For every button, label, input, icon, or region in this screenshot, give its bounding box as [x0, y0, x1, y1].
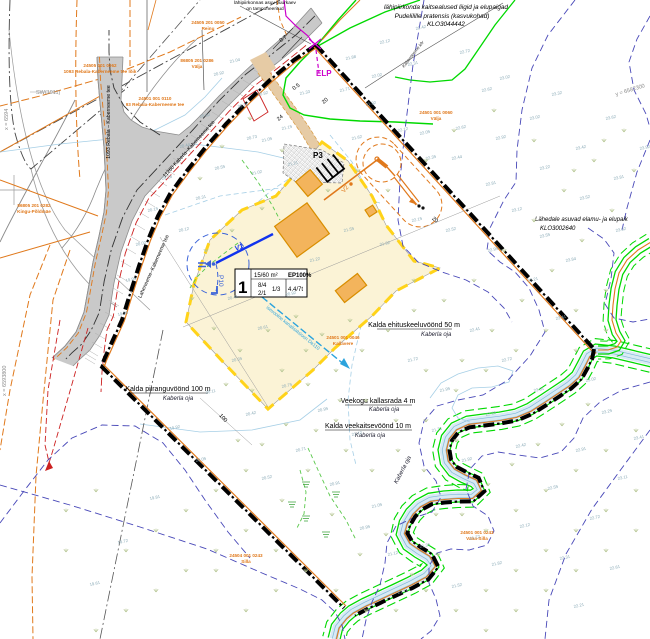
svg-text:P10: P10: [217, 275, 224, 287]
svg-text:Pudelilille pratensis (kasvu: Pudelilille pratensis (kasvukohad): [395, 13, 490, 20]
svg-text:on tamponeeritud: on tamponeeritud: [246, 6, 284, 12]
svg-text:Välja: Välja: [431, 116, 442, 121]
svg-text:lähipiirkonda kaitsealused lii: lähipiirkonda kaitsealused liigid ja elu…: [384, 4, 508, 11]
svg-text:Reinu: Reinu: [202, 26, 215, 31]
svg-text:Kalda piiranguvöönd 100 m: Kalda piiranguvöönd 100 m: [125, 386, 210, 393]
svg-text:Kaberla oja: Kaberla oja: [369, 407, 400, 413]
svg-text:8/4: 8/4: [258, 283, 267, 289]
svg-text:Kallavere: Kallavere: [333, 341, 354, 346]
svg-text:SW(1911): SW(1911): [36, 90, 61, 96]
svg-text:15/60 m²: 15/60 m²: [254, 273, 278, 279]
svg-text:93 Rebala-Kaberneeme tee: 93 Rebala-Kaberneeme tee: [126, 102, 185, 107]
svg-text:Silla: Silla: [241, 559, 251, 564]
svg-text:Veekogu kallasrada 4 m: Veekogu kallasrada 4 m: [341, 398, 416, 405]
svg-text:lähipiirkonnas asuv puurkaev: lähipiirkonnas asuv puurkaev: [234, 0, 296, 6]
svg-text:1093 Rebala – Kaberneeme tee: 1093 Rebala – Kaberneeme tee: [106, 85, 112, 159]
svg-text:24501 001 0060: 24501 001 0060: [419, 110, 453, 115]
svg-text:Kingu-Põldmäe: Kingu-Põldmäe: [17, 209, 51, 214]
svg-text:1: 1: [238, 278, 247, 297]
svg-text:Lähedale asuvad elamu- ja elup: Lähedale asuvad elamu- ja elupaik: [535, 217, 629, 223]
svg-text:x = 6594: x = 6594: [4, 109, 10, 130]
svg-text:Kalda ehituskeeluvöönd 50 m: Kalda ehituskeeluvöönd 50 m: [368, 322, 460, 329]
svg-text:24504 001 0243: 24504 001 0243: [229, 553, 263, 558]
svg-text:1093 Rebala-Kaberneeme tee lõi: 1093 Rebala-Kaberneeme tee lõik: [64, 69, 137, 74]
svg-text:P3: P3: [313, 151, 323, 160]
svg-text:24505 201 0050: 24505 201 0050: [191, 20, 225, 25]
svg-text:ELP: ELP: [316, 69, 332, 78]
svg-text:Välja: Välja: [192, 64, 203, 69]
svg-text:24505 001 0062: 24505 001 0062: [83, 63, 117, 68]
svg-text:x = 6593800: x = 6593800: [2, 366, 8, 396]
svg-text:86805 201 0286: 86805 201 0286: [180, 58, 214, 63]
svg-text:EP100%: EP100%: [288, 273, 312, 279]
svg-text:24501 001 0110: 24501 001 0110: [139, 96, 172, 101]
svg-text:Kaberla oja: Kaberla oja: [421, 332, 452, 338]
svg-text:Kalda veekaitsevöönd 10 m: Kalda veekaitsevöönd 10 m: [325, 423, 411, 430]
svg-text:Kaberla oja: Kaberla oja: [163, 396, 194, 402]
svg-text:86805 201 0282: 86805 201 0282: [17, 203, 51, 208]
svg-text:KLO3002640: KLO3002640: [540, 226, 576, 232]
svg-text:KLO3044442: KLO3044442: [427, 21, 465, 28]
svg-text:24501 001 0046: 24501 001 0046: [326, 335, 360, 340]
svg-text:2/1: 2/1: [258, 291, 267, 297]
svg-text:1/3: 1/3: [272, 287, 281, 293]
